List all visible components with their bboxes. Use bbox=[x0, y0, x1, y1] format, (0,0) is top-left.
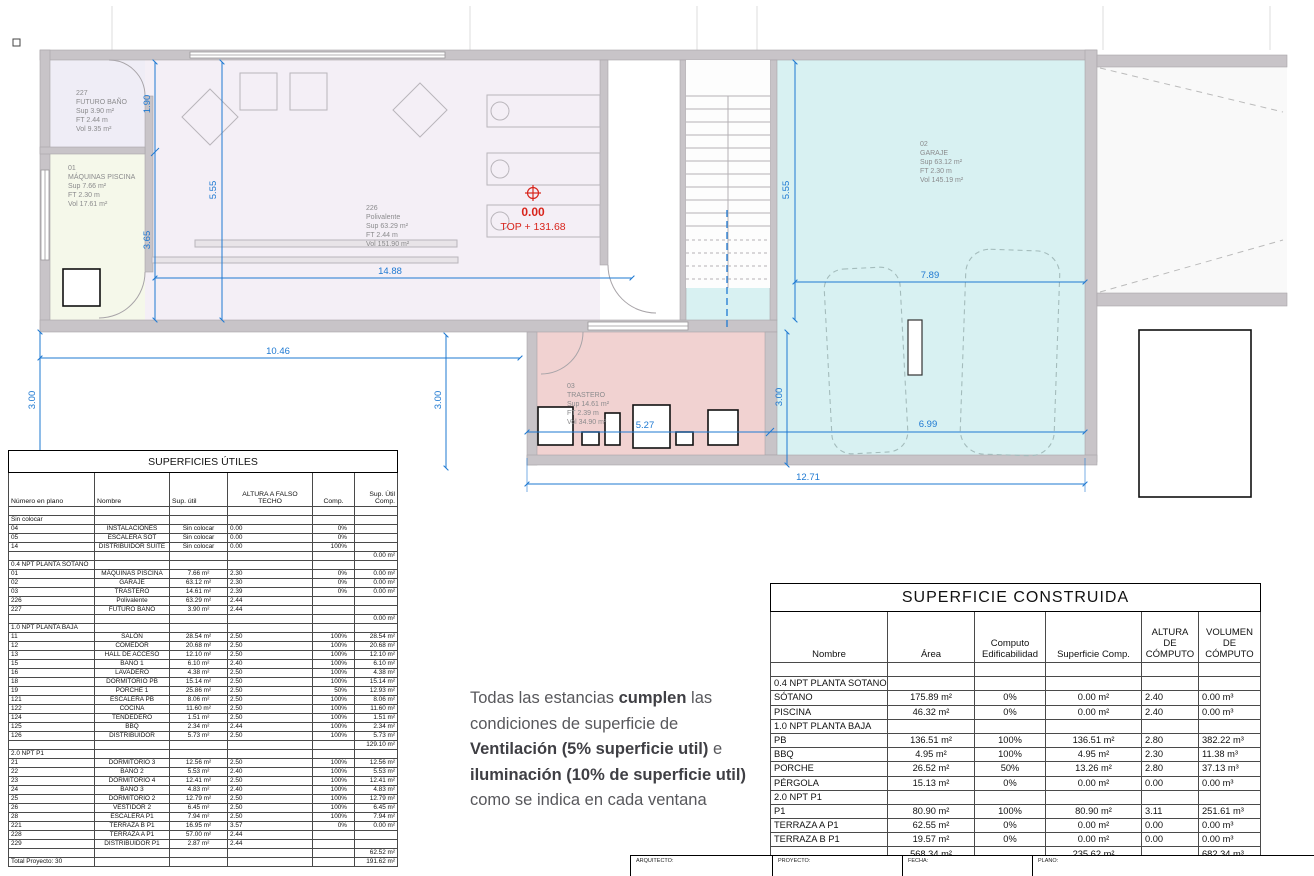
right-table-body: 0.4 NPT PLANTA SOTANOSÓTANO175.89 m²0%0.… bbox=[771, 663, 1261, 862]
table-row: 22BAÑO 25.53 m²2.40100%5.53 m² bbox=[9, 768, 398, 777]
col-altura-falso-techo: ALTURA A FALSO TECHO bbox=[228, 473, 313, 507]
table-row: 24BAÑO 34.83 m²2.40100%4.83 m² bbox=[9, 786, 398, 795]
svg-text:TOP + 131.68: TOP + 131.68 bbox=[500, 221, 565, 233]
note-text: Todas las estancias bbox=[470, 689, 619, 707]
col-superficie-comp: Superficie Comp. bbox=[1046, 612, 1142, 663]
svg-text:TRASTERO: TRASTERO bbox=[567, 392, 606, 399]
titleblock-cell-arquitecto: ARQUITECTO: bbox=[630, 856, 772, 876]
svg-text:3.00: 3.00 bbox=[27, 391, 38, 410]
svg-text:Sup 63.12 m²: Sup 63.12 m² bbox=[920, 159, 963, 166]
col-sup-util: Sup. útil bbox=[170, 473, 228, 507]
table-row: 124TENDEDERO1.51 m²2.50100%1.51 m² bbox=[9, 714, 398, 723]
svg-text:226: 226 bbox=[366, 205, 378, 212]
table-row: 03TRASTERO14.61 m²2.390%0.00 m² bbox=[9, 588, 398, 597]
section-row: 1.0 NPT PLANTA BAJA bbox=[9, 624, 398, 633]
svg-text:227: 227 bbox=[76, 90, 88, 97]
room-label-futuro-bano: 227 FUTURO BAÑO Sup 3.90 m² FT 2.44 m Vo… bbox=[76, 90, 128, 133]
svg-text:FT 2.44 m: FT 2.44 m bbox=[366, 232, 398, 239]
col-area: Área bbox=[888, 612, 975, 663]
table-row: 121ESCALERA PB8.06 m²2.50100%8.06 m² bbox=[9, 696, 398, 705]
title-block: ARQUITECTO: PROYECTO: FECHA: PLANO: bbox=[630, 855, 1314, 876]
walls bbox=[40, 50, 1287, 465]
left-table-body: Sin colocar04INSTALACIONESSin colocar0.0… bbox=[9, 507, 398, 867]
table-row: 19PORCHE 125.86 m²2.5050%12.93 m² bbox=[9, 687, 398, 696]
table-row: 05ESCALERA SOTSin colocar0.000% bbox=[9, 534, 398, 543]
compliance-note: Todas las estancias cumplen las condicio… bbox=[470, 686, 775, 814]
svg-text:GARAJE: GARAJE bbox=[920, 150, 948, 157]
note-bold-cumplen: cumplen bbox=[619, 689, 687, 707]
section-row: Sin colocar bbox=[9, 516, 398, 525]
table-row: PÉRGOLA15.13 m²0%0.00 m²0.000.00 m³ bbox=[771, 776, 1261, 790]
col-computo-edificabilidad: Computo Edificabilidad bbox=[975, 612, 1046, 663]
svg-text:0.00: 0.00 bbox=[521, 205, 545, 219]
windows bbox=[41, 52, 688, 330]
col-nombre: Nombre bbox=[771, 612, 888, 663]
table-row: 15BAÑO 16.10 m²2.40100%6.10 m² bbox=[9, 660, 398, 669]
svg-text:1.90: 1.90 bbox=[142, 95, 153, 114]
table-row: 229DISTRIBUIDOR P12.87 m²2.44 bbox=[9, 840, 398, 849]
svg-text:Vol 9.35 m²: Vol 9.35 m² bbox=[76, 126, 112, 133]
col-nombre: Nombre bbox=[95, 473, 170, 507]
table-row: 226Polivalente63.29 m²2.44 bbox=[9, 597, 398, 606]
level-marker: 0.00 TOP + 131.68 bbox=[500, 185, 565, 233]
table-row: 122COCINA11.60 m²2.50100%11.60 m² bbox=[9, 705, 398, 714]
dimension-labels: 1.90 3.65 5.55 5.55 14.88 7.89 10.46 3.0… bbox=[27, 95, 939, 483]
table-row: 129.10 m² bbox=[9, 741, 398, 750]
table-row: 11SALÓN28.54 m²2.50100%28.54 m² bbox=[9, 633, 398, 642]
room-label-maquinas-piscina: 01 MÁQUINAS PISCINA Sup 7.66 m² FT 2.30 … bbox=[68, 165, 136, 208]
table-row: PB136.51 m²100%136.51 m²2.80382.22 m³ bbox=[771, 733, 1261, 747]
svg-text:5.55: 5.55 bbox=[208, 181, 219, 200]
garage-under-stairs bbox=[686, 288, 777, 320]
table-row: SÓTANO175.89 m²0%0.00 m²2.400.00 m³ bbox=[771, 691, 1261, 705]
room-label-trastero: 03 TRASTERO Sup 14.61 m² FT 2.39 m Vol 3… bbox=[567, 383, 610, 426]
ramp-lines bbox=[1100, 68, 1283, 292]
table-row: 228TERRAZA A P157.00 m²2.44 bbox=[9, 831, 398, 840]
svg-text:10.46: 10.46 bbox=[266, 346, 290, 357]
door-arcs bbox=[99, 60, 656, 374]
table-row: 02GARAJE63.12 m²2.300%0.00 m² bbox=[9, 579, 398, 588]
note-bold-iluminacion: iluminación (10% de superficie util) bbox=[470, 766, 746, 784]
room-fills bbox=[50, 60, 1287, 455]
svg-text:14.88: 14.88 bbox=[378, 266, 402, 277]
right-table-header: Nombre Área Computo Edificabilidad Super… bbox=[771, 612, 1261, 663]
svg-text:03: 03 bbox=[567, 383, 575, 390]
svg-text:MÁQUINAS PISCINA: MÁQUINAS PISCINA bbox=[68, 172, 136, 181]
section-row: 1.0 NPT PLANTA BAJA bbox=[771, 719, 1261, 733]
svg-text:3.00: 3.00 bbox=[774, 388, 785, 407]
col-numero: Número en plano bbox=[9, 473, 95, 507]
table-row: 126DISTRIBUIDOR5.73 m²2.50100%5.73 m² bbox=[9, 732, 398, 741]
ramp-area bbox=[1097, 67, 1287, 293]
table-row: P180.90 m²100%80.90 m²3.11251.61 m³ bbox=[771, 804, 1261, 818]
table-row: 16LAVADERO4.38 m²2.50100%4.38 m² bbox=[9, 669, 398, 678]
left-table-header: Número en plano Nombre Sup. útil ALTURA … bbox=[9, 473, 398, 507]
svg-text:FT 2.30 m: FT 2.30 m bbox=[68, 192, 100, 199]
titleblock-cell-proyecto: PROYECTO: bbox=[772, 856, 902, 876]
svg-text:FT 2.30 m: FT 2.30 m bbox=[920, 168, 952, 175]
svg-text:Sup 63.29 m²: Sup 63.29 m² bbox=[366, 223, 409, 230]
garage-pillar bbox=[908, 320, 922, 375]
col-altura-computo: ALTURA DE CÓMPUTO bbox=[1142, 612, 1199, 663]
room-futuro-bano bbox=[50, 60, 145, 147]
svg-text:5.27: 5.27 bbox=[636, 420, 655, 431]
svg-text:01: 01 bbox=[68, 165, 76, 172]
sheet-corner-mark bbox=[13, 39, 20, 46]
section-row: 0.4 NPT PLANTA SOTANO bbox=[771, 677, 1261, 691]
room-trastero bbox=[537, 332, 765, 455]
room-garaje bbox=[777, 60, 1085, 455]
drawing-sheet: 227 FUTURO BAÑO Sup 3.90 m² FT 2.44 m Vo… bbox=[0, 0, 1314, 876]
right-table-title: SUPERFICIE CONSTRUIDA bbox=[771, 584, 1261, 612]
table-row bbox=[9, 507, 398, 516]
svg-text:Sup 14.61 m²: Sup 14.61 m² bbox=[567, 401, 610, 408]
table-row: 227FUTURO BAÑO3.90 m²2.44 bbox=[9, 606, 398, 615]
section-row: 2.0 NPT P1 bbox=[771, 790, 1261, 804]
svg-text:FT 2.39 m: FT 2.39 m bbox=[567, 410, 599, 417]
svg-text:Vol 17.61 m²: Vol 17.61 m² bbox=[68, 201, 108, 208]
section-row: 2.0 NPT P1 bbox=[9, 750, 398, 759]
col-volumen-computo: VOLUMEN DE CÓMPUTO bbox=[1199, 612, 1261, 663]
table-row: 21DORMITORIO 312.56 m²2.50100%12.56 m² bbox=[9, 759, 398, 768]
table-row: 18DORMITORIO PB15.14 m²2.50100%15.14 m² bbox=[9, 678, 398, 687]
superficies-utiles-table: SUPERFICIES ÚTILES Número en plano Nombr… bbox=[8, 450, 398, 867]
svg-text:02: 02 bbox=[920, 141, 928, 148]
stair-zone bbox=[608, 60, 776, 320]
svg-text:12.71: 12.71 bbox=[796, 472, 820, 483]
table-row: 04INSTALACIONESSin colocar0.000% bbox=[9, 525, 398, 534]
table-row: 125BBQ2.34 m²2.44100%2.34 m² bbox=[9, 723, 398, 732]
table-row: 25DORMITORIO 212.79 m²2.50100%12.79 m² bbox=[9, 795, 398, 804]
car-outlines bbox=[823, 248, 1060, 456]
titleblock-cell-plano: PLANO: bbox=[1032, 856, 1314, 876]
table-row: 28ESCALERA P17.94 m²2.50100%7.94 m² bbox=[9, 813, 398, 822]
section-row: 0.4 NPT PLANTA SOTANO bbox=[9, 561, 398, 570]
table-row: 0.00 m² bbox=[9, 615, 398, 624]
svg-text:Sup 7.66 m²: Sup 7.66 m² bbox=[68, 183, 107, 190]
room-label-garaje: 02 GARAJE Sup 63.12 m² FT 2.30 m Vol 145… bbox=[920, 141, 964, 184]
table-row: 01MÁQUINAS PISCINA7.66 m²2.300%0.00 m² bbox=[9, 570, 398, 579]
svg-text:5.55: 5.55 bbox=[781, 181, 792, 200]
table-row: 14DISTRIBUIDOR SUITESin colocar0.00100% bbox=[9, 543, 398, 552]
svg-text:FUTURO BAÑO: FUTURO BAÑO bbox=[76, 97, 128, 106]
titleblock-cell-fecha: FECHA: bbox=[902, 856, 1032, 876]
table-row: 12COMEDOR20.68 m²2.50100%20.68 m² bbox=[9, 642, 398, 651]
table-row: 23DORMITORIO 412.41 m²2.50100%12.41 m² bbox=[9, 777, 398, 786]
table-row: PORCHE26.52 m²50%13.26 m²2.8037.13 m³ bbox=[771, 762, 1261, 776]
table-row bbox=[771, 663, 1261, 677]
svg-text:3.00: 3.00 bbox=[433, 391, 444, 410]
table-row: 221TERRAZA B P116.95 m²3.570%0.00 m² bbox=[9, 822, 398, 831]
superficie-construida-table: SUPERFICIE CONSTRUIDA Nombre Área Comput… bbox=[770, 583, 1261, 862]
table-row: 62.52 m² bbox=[9, 849, 398, 858]
svg-text:3.65: 3.65 bbox=[142, 231, 153, 250]
svg-text:FT 2.44 m: FT 2.44 m bbox=[76, 117, 108, 124]
room-maquinas-piscina bbox=[50, 154, 145, 320]
svg-text:Sup 3.90 m²: Sup 3.90 m² bbox=[76, 108, 115, 115]
col-sup-util-comp: Sup. Útil Comp. bbox=[355, 473, 398, 507]
svg-text:Polivalente: Polivalente bbox=[366, 214, 400, 221]
table-row: 26VESTIDOR 26.45 m²2.50100%6.45 m² bbox=[9, 804, 398, 813]
room-label-polivalente: 226 Polivalente Sup 63.29 m² FT 2.44 m V… bbox=[366, 205, 410, 248]
dimension-lines bbox=[40, 62, 1085, 492]
table-row: PISCINA46.32 m²0%0.00 m²2.400.00 m³ bbox=[771, 705, 1261, 719]
left-table-title: SUPERFICIES ÚTILES bbox=[9, 451, 398, 473]
table-row: TERRAZA A P162.55 m²0%0.00 m²0.000.00 m³ bbox=[771, 819, 1261, 833]
table-row: 0.00 m² bbox=[9, 552, 398, 561]
note-bold-ventilacion: Ventilación (5% superficie util) bbox=[470, 740, 708, 758]
room-polivalente bbox=[50, 60, 600, 320]
svg-text:6.99: 6.99 bbox=[919, 419, 938, 430]
svg-text:7.89: 7.89 bbox=[921, 270, 940, 281]
furniture bbox=[152, 73, 600, 263]
table-row: Total Proyecto: 30191.62 m² bbox=[9, 858, 398, 867]
col-comp: Comp. bbox=[313, 473, 355, 507]
grid-lines bbox=[112, 6, 1270, 50]
table-row: 13HALL DE ACCESO12.10 m²2.50100%12.10 m² bbox=[9, 651, 398, 660]
table-row: TERRAZA B P119.57 m²0%0.00 m²0.000.00 m³ bbox=[771, 833, 1261, 847]
svg-text:Vol 145.19 m²: Vol 145.19 m² bbox=[920, 177, 964, 184]
svg-text:Vol 151.90 m²: Vol 151.90 m² bbox=[366, 241, 410, 248]
table-row: BBQ4.95 m²100%4.95 m²2.3011.38 m³ bbox=[771, 748, 1261, 762]
svg-text:Vol 34.90 m²: Vol 34.90 m² bbox=[567, 419, 607, 426]
stairs bbox=[686, 60, 770, 330]
